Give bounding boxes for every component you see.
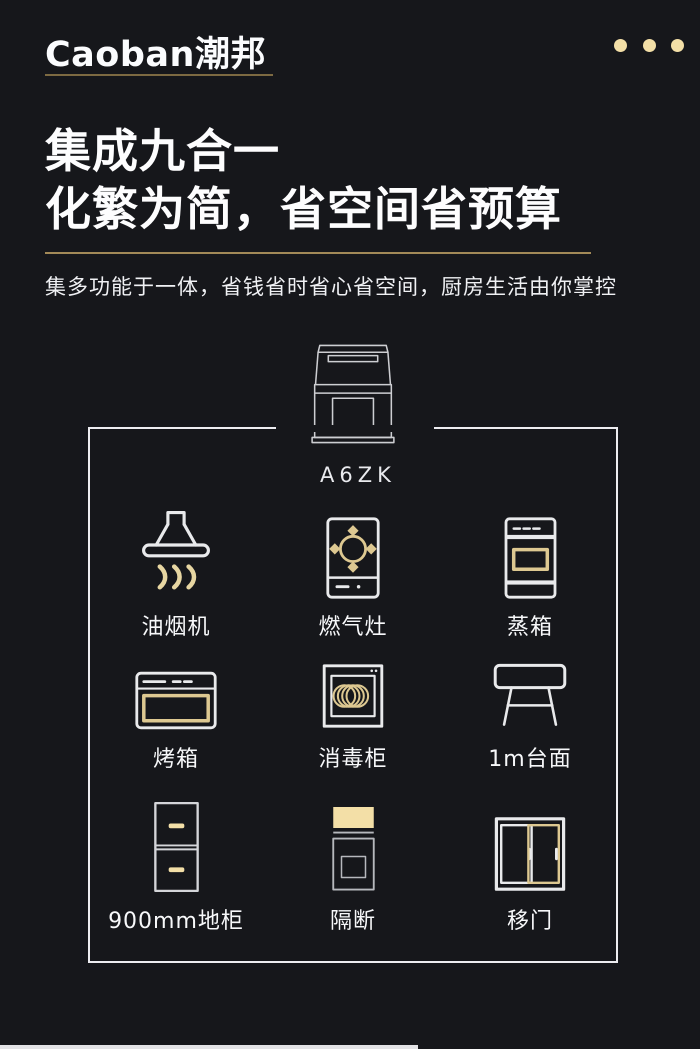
feature-label: 隔断 — [265, 903, 441, 935]
dot — [671, 39, 684, 52]
feature-label: 900mm地柜 — [88, 903, 264, 935]
title-line-1: 集成九合一 — [45, 122, 562, 180]
three-dots-icon — [614, 38, 684, 52]
feature-label: 油烟机 — [88, 609, 264, 641]
feature-countertop: 1m台面 — [442, 660, 618, 773]
bottom-section-edge — [0, 1045, 418, 1049]
feature-label: 移门 — [442, 903, 618, 935]
feature-base-cabinet: 900mm地柜 — [88, 798, 264, 935]
feature-label: 1m台面 — [442, 741, 618, 773]
feature-oven: 烤箱 — [88, 660, 264, 773]
feature-partition: 隔断 — [265, 798, 441, 935]
page-title: 集成九合一 化繁为简，省空间省预算 — [45, 122, 562, 238]
feature-sliding-door: 移门 — [442, 798, 618, 935]
steam-oven-icon — [442, 505, 618, 600]
logo-underline — [45, 74, 273, 76]
feature-label: 消毒柜 — [265, 741, 441, 773]
title-line-2: 化繁为简，省空间省预算 — [45, 180, 562, 238]
sliding-door-icon — [442, 798, 618, 894]
countertop-icon — [442, 660, 618, 732]
dot — [643, 39, 656, 52]
border-gap — [276, 425, 434, 432]
partition-icon — [265, 798, 441, 894]
disinfection-cabinet-icon — [265, 660, 441, 732]
feature-range-hood: 油烟机 — [88, 505, 264, 641]
page-subtitle: 集多功能于一体，省钱省时省心省空间，厨房生活由你掌控 — [45, 271, 617, 301]
dot — [614, 39, 627, 52]
feature-label: 烤箱 — [88, 741, 264, 773]
feature-gas-stove: 燃气灶 — [265, 505, 441, 641]
gold-divider — [45, 252, 591, 254]
oven-icon — [88, 660, 264, 732]
gas-stove-icon — [265, 505, 441, 600]
feature-steam-oven: 蒸箱 — [442, 505, 618, 641]
feature-label: 蒸箱 — [442, 609, 618, 641]
base-cabinet-icon — [88, 798, 264, 894]
range-hood-icon — [88, 505, 264, 600]
brand-logo: Caoban潮邦 — [45, 26, 266, 77]
feature-disinfection-cabinet: 消毒柜 — [265, 660, 441, 773]
feature-label: 燃气灶 — [265, 609, 441, 641]
